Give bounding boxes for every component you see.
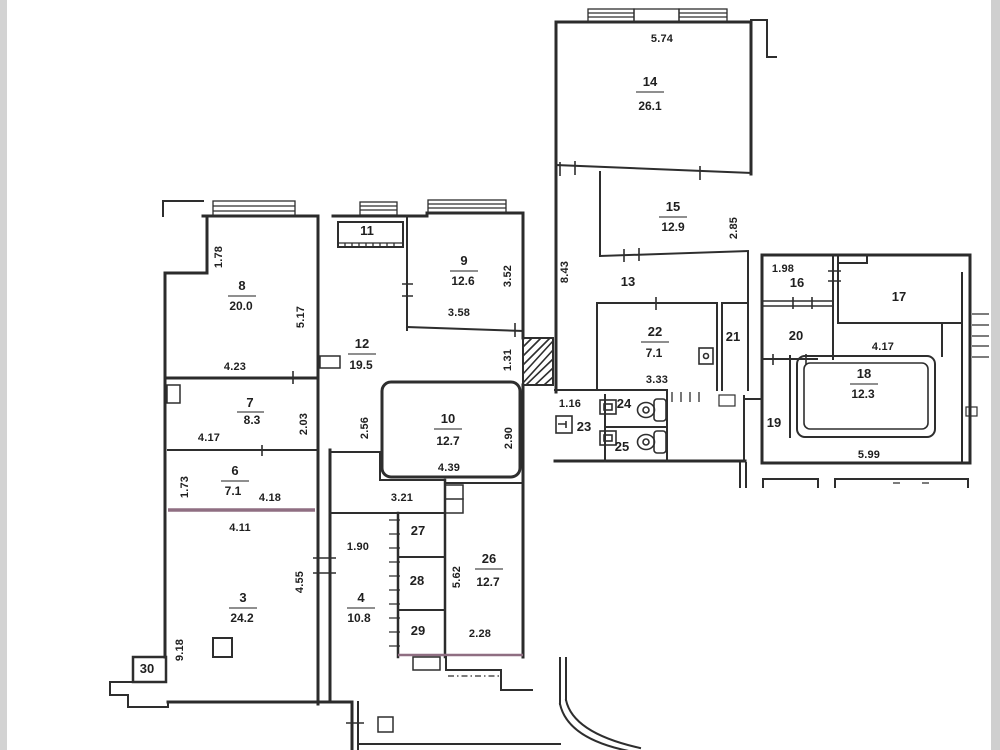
dim-w6-right: 4.18 <box>259 492 281 504</box>
dim-h10-right: 2.90 <box>503 427 515 449</box>
room-label-26: 26 12.7 <box>475 551 503 589</box>
svg-text:26: 26 <box>482 551 496 566</box>
dim-w22-bottom: 3.33 <box>646 374 668 386</box>
svg-text:22: 22 <box>648 324 662 339</box>
room-label-27: 27 <box>411 523 425 538</box>
svg-text:3: 3 <box>239 590 246 605</box>
svg-text:12.7: 12.7 <box>476 575 500 589</box>
svg-text:12.7: 12.7 <box>436 434 460 448</box>
svg-text:12: 12 <box>355 336 369 351</box>
room-label-7: 7 8.3 <box>237 395 264 427</box>
shaft-hatch <box>523 338 553 385</box>
dim-h15-right: 2.85 <box>728 217 740 239</box>
room-label-4: 4 10.8 <box>347 590 375 625</box>
svg-text:10: 10 <box>441 411 455 426</box>
svg-text:8.3: 8.3 <box>244 413 261 427</box>
floorplan-drawing: 14 26.1 15 12.9 13 11 8 20.0 9 12.6 12 1… <box>0 0 1000 750</box>
svg-text:19.5: 19.5 <box>349 358 373 372</box>
room-label-20: 20 <box>789 328 803 343</box>
room-label-12: 12 19.5 <box>348 336 376 372</box>
dim-w14-top: 5.74 <box>651 33 674 45</box>
room-label-19: 19 <box>767 415 781 430</box>
svg-text:26.1: 26.1 <box>638 99 662 113</box>
room-label-29: 29 <box>411 623 425 638</box>
room-label-8: 8 20.0 <box>228 278 256 313</box>
window-symbols <box>213 9 727 247</box>
room-label-18: 18 12.3 <box>850 366 878 401</box>
svg-text:12.9: 12.9 <box>661 220 685 234</box>
room-label-15: 15 12.9 <box>659 199 687 234</box>
dim-w18-top: 4.17 <box>872 341 894 353</box>
scan-edges <box>0 0 1000 750</box>
svg-text:15: 15 <box>666 199 680 214</box>
svg-text:20.0: 20.0 <box>229 299 253 313</box>
room-label-23: 23 <box>577 419 591 434</box>
dim-shaft: 1.31 <box>502 349 514 371</box>
washbasin-22-icon <box>699 348 713 364</box>
dim-h3-right: 4.55 <box>294 571 306 593</box>
dim-w26-bottom: 2.28 <box>469 628 491 640</box>
svg-text:6: 6 <box>231 463 238 478</box>
svg-text:14: 14 <box>643 74 658 89</box>
dim-w7-bottom: 4.17 <box>198 432 220 444</box>
svg-text:24.2: 24.2 <box>230 611 254 625</box>
dim-w18-bottom: 5.99 <box>858 449 880 461</box>
dim-h13-left: 8.43 <box>559 261 571 283</box>
room-label-9: 9 12.6 <box>450 253 478 288</box>
room-label-25: 25 <box>615 439 629 454</box>
room-label-30: 30 <box>140 661 154 676</box>
room-label-13: 13 <box>621 274 635 289</box>
dim-h7-right: 2.03 <box>298 413 310 435</box>
dim-h3-left: 9.18 <box>174 639 186 661</box>
room-label-11: 11 <box>360 223 374 238</box>
room-label-6: 6 7.1 <box>221 463 249 498</box>
svg-text:7: 7 <box>246 395 253 410</box>
room-label-10: 10 12.7 <box>434 411 462 448</box>
washbasin-23-icon <box>556 416 572 433</box>
svg-text:8: 8 <box>238 278 245 293</box>
svg-text:7.1: 7.1 <box>646 346 663 360</box>
svg-text:10.8: 10.8 <box>347 611 371 625</box>
svg-text:7.1: 7.1 <box>225 484 242 498</box>
dim-w4-top: 1.90 <box>347 541 369 553</box>
svg-text:12.3: 12.3 <box>851 387 875 401</box>
dim-h26-left: 5.62 <box>451 566 463 588</box>
dim-h8-right: 5.17 <box>295 306 307 328</box>
toilet-25-icon <box>600 431 666 453</box>
dimension-labels: 5.74 2.85 8.43 1.98 4.17 5.99 3.33 1.16 … <box>174 33 894 661</box>
room-label-22: 22 7.1 <box>641 324 669 360</box>
svg-text:18: 18 <box>857 366 871 381</box>
room-label-3: 3 24.2 <box>229 590 257 625</box>
room-label-28: 28 <box>410 573 424 588</box>
room-label-17: 17 <box>892 289 906 304</box>
room-label-21: 21 <box>726 329 740 344</box>
dim-w23-top: 1.16 <box>559 398 581 410</box>
dim-h8-left: 1.78 <box>213 246 225 268</box>
svg-text:12.6: 12.6 <box>451 274 475 288</box>
walls-exterior <box>165 22 970 750</box>
svg-text:9: 9 <box>460 253 467 268</box>
room-label-16: 16 <box>790 275 804 290</box>
dim-w8-bottom: 4.23 <box>224 361 246 373</box>
dim-h9-right: 3.52 <box>502 265 514 287</box>
toilet-24-icon <box>600 399 666 421</box>
dim-w9-bottom: 3.58 <box>448 307 470 319</box>
dim-w6-bottom: 4.11 <box>229 522 251 534</box>
svg-text:4: 4 <box>357 590 365 605</box>
dim-w27-top: 3.21 <box>391 492 413 504</box>
room-label-14: 14 26.1 <box>636 74 664 113</box>
dim-w10-bottom: 4.39 <box>438 462 460 474</box>
dim-w16-top: 1.98 <box>772 263 794 275</box>
floorplan-canvas: 14 26.1 15 12.9 13 11 8 20.0 9 12.6 12 1… <box>0 0 1000 750</box>
dim-h10-left: 2.56 <box>359 417 371 439</box>
room-label-24: 24 <box>617 396 632 411</box>
dim-h6-left: 1.73 <box>179 476 191 498</box>
